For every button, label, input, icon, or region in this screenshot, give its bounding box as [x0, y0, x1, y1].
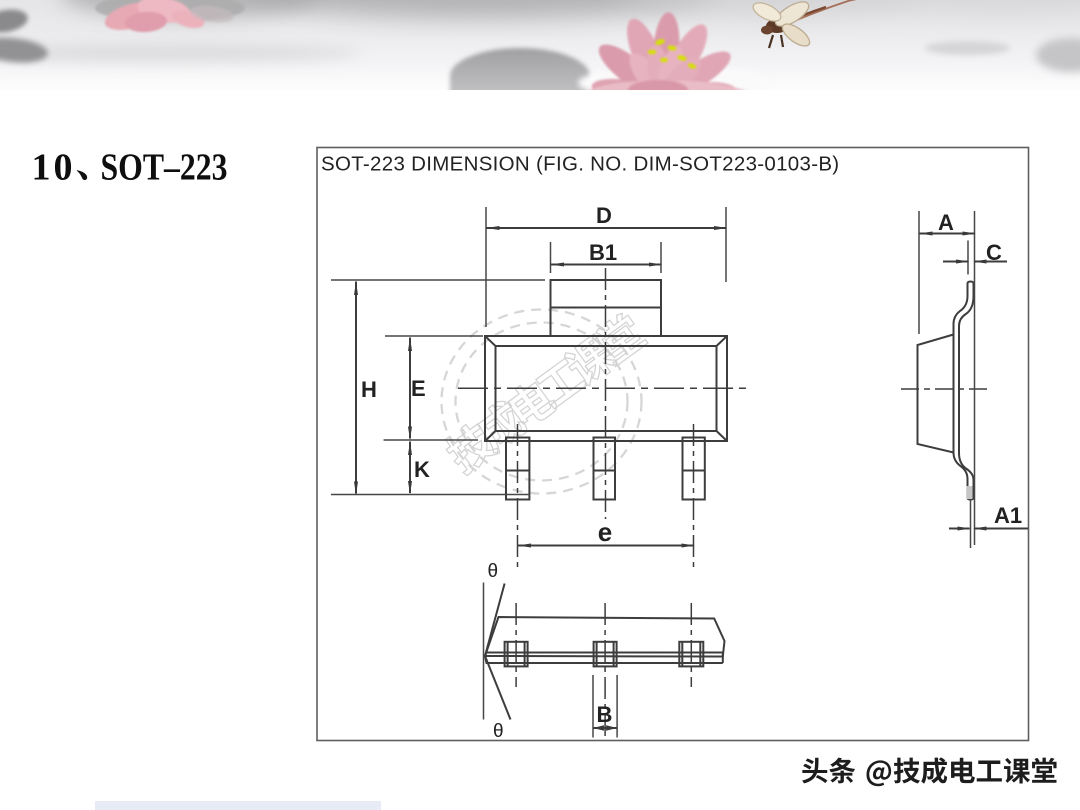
svg-text:C: C: [986, 240, 1002, 265]
svg-text:D: D: [596, 203, 612, 228]
svg-text:θ: θ: [493, 721, 504, 742]
svg-text:K: K: [414, 457, 430, 482]
svg-text:e: e: [598, 517, 612, 547]
svg-text:E: E: [411, 376, 426, 401]
svg-text:θ: θ: [488, 561, 499, 582]
svg-text:B1: B1: [589, 240, 617, 265]
svg-text:SOT-223 DIMENSION (FIG. NO. DI: SOT-223 DIMENSION (FIG. NO. DIM-SOT223-0…: [321, 153, 839, 176]
svg-text:H: H: [361, 377, 377, 402]
svg-text:A1: A1: [994, 503, 1022, 528]
svg-text:B: B: [597, 702, 613, 727]
svg-text:A: A: [938, 210, 954, 235]
